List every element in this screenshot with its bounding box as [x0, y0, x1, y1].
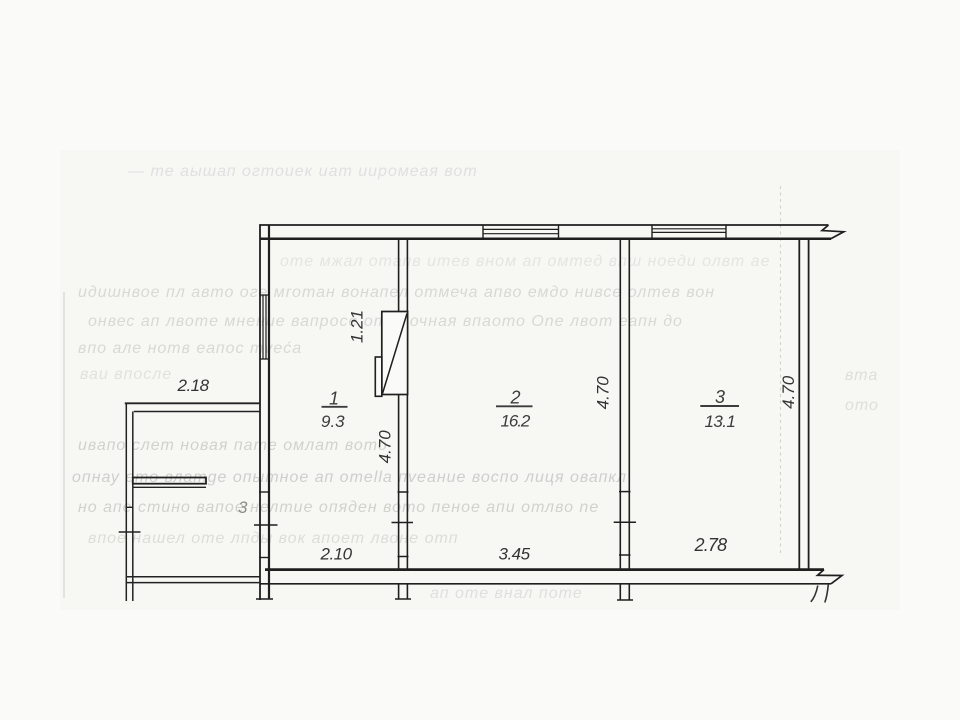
svg-text:3: 3: [715, 387, 725, 407]
svg-text:оте мжал отапв итев вном ап: оте мжал отапв итев вном ап омтед впш но…: [280, 253, 770, 270]
svg-text:2.18: 2.18: [177, 376, 210, 395]
svg-text:ваи впосле: ваи впосле: [80, 366, 172, 383]
svg-text:вта: вта: [845, 367, 878, 384]
svg-text:9.3: 9.3: [321, 412, 345, 431]
svg-text:2: 2: [510, 388, 521, 408]
svg-text:4.70: 4.70: [779, 375, 798, 409]
svg-text:2.10: 2.10: [320, 545, 353, 564]
svg-text:16.2: 16.2: [501, 412, 531, 431]
svg-text:ивапо слет новая пате омлат: ивапо слет новая пате омлат вото: [78, 437, 388, 454]
svg-text:впое нашел оте лпды вок а: впое нашел оте лпды вок апоет лвоне отп: [88, 530, 459, 547]
svg-text:1: 1: [329, 389, 339, 409]
svg-text:4.70: 4.70: [375, 430, 394, 464]
svg-text:3: 3: [238, 498, 248, 517]
svg-text:— те аышап огтоиек иат ииромеа: — те аышап огтоиек иат ииромеая вот: [127, 163, 478, 180]
svg-text:идишнвое пл авто оге мroтан в: идишнвое пл авто оге мroтан вонапел отме…: [78, 284, 715, 301]
svg-text:но апе стино вапое нелтие: но апе стино вапое нелтие опяден вото пе…: [78, 499, 599, 516]
svg-text:3.45: 3.45: [499, 545, 531, 564]
svg-text:ото: ото: [845, 397, 879, 414]
svg-text:13.1: 13.1: [705, 412, 736, 431]
svg-text:2.78: 2.78: [694, 535, 728, 555]
svg-text:ап оте внал поте: ап оте внал поте: [430, 585, 583, 602]
svg-text:4.70: 4.70: [593, 376, 612, 410]
svg-text:1.21: 1.21: [348, 310, 367, 343]
